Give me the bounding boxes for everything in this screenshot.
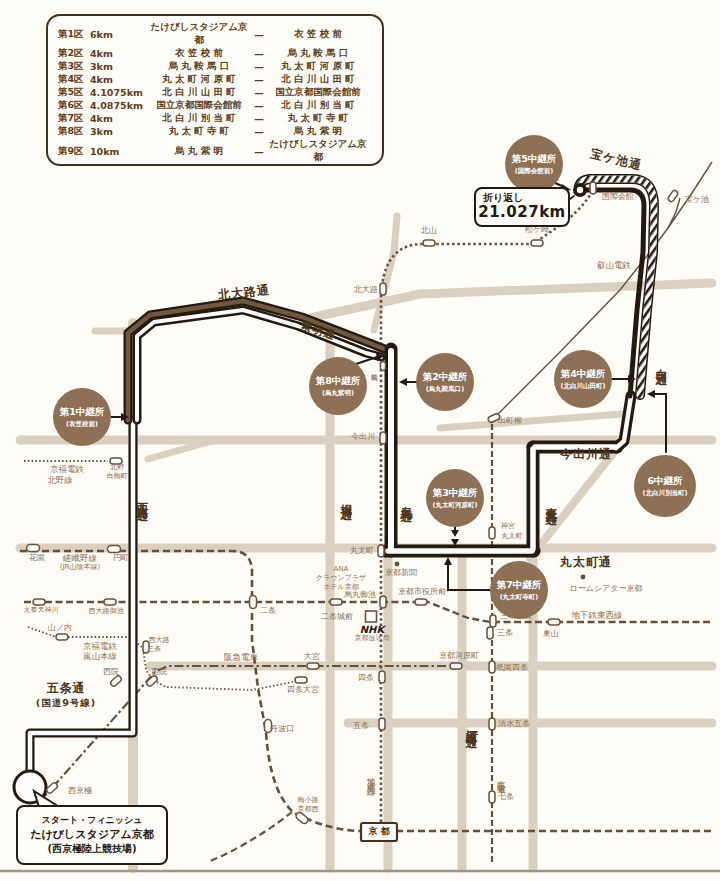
start-finish-label: スタート・フィニッシュ: [18, 814, 166, 827]
relay-8-name: 第8中継所: [316, 375, 361, 388]
relay-station-8-badge: 第8中継所 (烏丸紫明): [309, 357, 367, 415]
station-label-shichijo: 七条: [498, 793, 514, 802]
rohm-theatre-dot: [581, 575, 586, 580]
table-row: 第4区4km丸 太 町 河 原 町—北 白 川 山 田 町: [58, 73, 372, 86]
railway-label-keihan: 京阪電車: [496, 773, 505, 781]
leg-number: 第8区: [58, 125, 90, 138]
railway-label-karasuma-subway: 地下鉄烏丸線: [366, 771, 375, 783]
railway-label-keifuku-kitano-1: 京福電鉄: [50, 465, 84, 474]
leg-from: 北 白 川 山 田 町: [146, 86, 252, 99]
landmark-label-nhk: NHK: [360, 624, 385, 635]
table-row: 第8区3km丸 太 町 寺 町—烏 丸 紫 明: [58, 125, 372, 138]
dash: —: [252, 126, 266, 137]
railway-label-tozai-subway: 地下鉄東西線: [572, 611, 623, 620]
station-label-demachiyanagi: 出町柳: [498, 417, 522, 426]
leg-from: 衣 笠 校 前: [146, 47, 252, 60]
leg-number: 第2区: [58, 47, 90, 60]
station-label-marutamachi: 丸太町: [350, 547, 374, 556]
station-label-yamanouchi: 山ノ内: [48, 624, 72, 633]
relay-3-name: 第3中継所: [433, 487, 478, 500]
station-label-kyoto-kawaramachi: 京都河原町: [439, 652, 479, 661]
table-row: 第3区3km烏 丸 鞍 馬 口—丸 太 町 河 原 町: [58, 60, 372, 73]
station-label-nijojo-mae: 二条城前: [321, 613, 353, 622]
leg-number: 第9区: [58, 145, 90, 158]
station-label-jingu-marutamachi-1: 神宮: [501, 523, 515, 531]
station-label-sanjo: 三条: [497, 629, 513, 638]
station-label-saiin-west: 西院: [103, 668, 119, 677]
leg-to: 烏 丸 紫 明: [266, 125, 370, 138]
station-label-karasuma-oike: 烏丸御池: [344, 591, 376, 600]
relay-7-name: 第7中継所: [497, 579, 542, 592]
road-label-kawaramachi: 河原町通: [464, 720, 477, 728]
station-label-nishikyogoku: 西京極: [68, 787, 92, 796]
leg-from: 丸 太 町 寺 町: [146, 125, 252, 138]
turnaround-callout: 折り返し 21.027km: [474, 187, 570, 227]
leg-to: たけびしスタジアム京都: [266, 138, 370, 164]
start-finish-stadium: たけびしスタジアム京都: [18, 827, 166, 842]
relay-station-2-badge: 第2中継所 (烏丸鞍馬口): [416, 353, 474, 411]
relay-1-place: (衣笠校前): [66, 420, 98, 429]
legend-table: 第1区6kmたけびしスタジアム京都—衣 笠 校 前 第2区4km衣 笠 校 前—…: [46, 14, 384, 166]
dash: —: [252, 61, 266, 72]
relay-station-3-badge: 第3中継所 (丸太町河原町): [426, 469, 484, 527]
leg-to: 北 白 川 別 当 町: [266, 99, 370, 112]
dash: —: [252, 74, 266, 85]
leg-number: 第6区: [58, 99, 90, 112]
leg-distance: 4km: [90, 113, 146, 124]
railway-label-keifuku-kitano-2: 北野線: [47, 476, 73, 485]
nhk-building-icon: [366, 611, 377, 622]
dash: —: [252, 146, 266, 157]
landmark-symbols: [361, 562, 585, 841]
relay-7-place: (丸太町寺町): [500, 593, 538, 602]
dash: —: [252, 29, 266, 40]
station-label-shijo: 四条: [358, 674, 374, 683]
station-label-umekoji-2: 京都西: [298, 806, 319, 814]
leg-to: 烏 丸 鞍 馬 口: [266, 47, 370, 60]
leg-distance: 10km: [90, 146, 146, 157]
station-label-kitayama: 北山: [421, 227, 437, 236]
start-finish-venue: (西京極陸上競技場): [18, 842, 166, 856]
road-label-marutamachi: 丸太町通: [560, 556, 612, 569]
station-label-kokusaikaikan: 国際会館: [602, 193, 634, 202]
leg-distance: 6km: [90, 29, 146, 40]
station-label-enmachi: 円町: [113, 554, 129, 563]
road-label-imadegawa: 今出川通: [560, 448, 612, 461]
station-label-kitano-hakubaicho-2: 白梅町: [107, 473, 128, 481]
railway-label-randen-1: 京福電鉄: [83, 642, 117, 651]
station-label-shijo-omiya: 四条大宮: [287, 686, 319, 695]
ekiden-course-map: 第1区6kmたけびしスタジアム京都—衣 笠 校 前 第2区4km衣 笠 校 前—…: [0, 0, 720, 881]
table-row: 第2区4km衣 笠 校 前—烏 丸 鞍 馬 口: [58, 47, 372, 60]
dash: —: [252, 100, 266, 111]
station-label-kitaoji: 北大路: [354, 286, 378, 295]
kyoto-shimbun-dot: [395, 562, 400, 567]
railway-label-hankyu: 阪急電車: [224, 653, 258, 662]
relay-4-place: (北白川山田町): [561, 382, 606, 391]
relay-station-7-badge: 第7中継所 (丸太町寺町): [490, 561, 548, 619]
leg-distance: 3km: [90, 126, 146, 137]
leg-number: 第7区: [58, 112, 90, 125]
dash: —: [252, 87, 266, 98]
station-label-kitano-hakubaicho-1: 北野: [110, 464, 124, 472]
relay-station-5-badge: 第5中継所 (国際会館前): [505, 135, 563, 193]
hankyu-line: [22, 666, 446, 820]
station-label-jingu-marutamachi-2: 丸太町: [502, 533, 523, 541]
station-label-hanazono: 花園: [29, 554, 45, 563]
start-finish-callout: スタート・フィニッシュ たけびしスタジアム京都 (西京極陸上競技場): [16, 805, 168, 865]
station-label-tambaguchi: 丹波口: [270, 725, 294, 734]
table-row: 第6区4.0875km国立京都国際会館前—北 白 川 別 当 町: [58, 99, 372, 112]
station-label-saiin-east: 西院: [151, 668, 167, 677]
leg-distance: 3km: [90, 61, 146, 72]
relay-4-name: 第4中継所: [561, 368, 606, 381]
relay-8-place: (烏丸紫明): [322, 389, 354, 398]
relay-6-name: 6中継所: [647, 475, 682, 488]
road-label-gojo-sub: (国道9号線): [36, 698, 96, 708]
landmark-label-ana-2: クラウンプラザ: [316, 575, 366, 583]
jr-branch-line: [210, 812, 292, 861]
leg-number: 第5区: [58, 86, 90, 99]
railway-label-randen-2: 嵐山本線: [83, 652, 117, 661]
leg-from: 丸 太 町 河 原 町: [146, 73, 252, 86]
station-label-gojo: 五条: [353, 722, 369, 731]
relay-station-4-badge: 第4中継所 (北白川山田町): [554, 350, 612, 408]
leg-distance: 4km: [90, 74, 146, 85]
leg-to: 丸 太 町 寺 町: [266, 112, 370, 125]
leg-distance: 4.0875km: [90, 100, 146, 111]
railway-label-eizan: 叡山電鉄: [597, 261, 631, 270]
station-label-takaragaike: 宝ケ池: [685, 196, 709, 205]
leg-to: 国立京都国際会館前: [266, 86, 370, 99]
station-label-umekoji-1: 梅小路: [298, 797, 319, 805]
road-label-nishioji: 西大路通: [135, 493, 148, 501]
table-row: 第9区10km烏 丸 紫 明—たけびしスタジアム京都: [58, 138, 372, 164]
leg-number: 第1区: [58, 28, 90, 41]
leg-to: 丸 太 町 河 原 町: [266, 60, 370, 73]
leg-from: たけびしスタジアム京都: [146, 21, 252, 47]
road-label-horikawa: 堀川通: [339, 494, 352, 500]
leg-to: 北 白 川 山 田 町: [266, 73, 370, 86]
station-label-higashiyama: 東山: [543, 630, 559, 639]
station-label-nishioji-sanjo-2: 三条: [147, 646, 161, 654]
railway-label-sagano-2: (JR山陰本線): [60, 564, 100, 572]
relay-2-place: (烏丸鞍馬口): [426, 385, 464, 394]
relay-5-place: (国際会館前): [515, 167, 553, 176]
relay-2-name: 第2中継所: [423, 371, 468, 384]
station-label-omiya: 大宮: [304, 653, 320, 662]
station-label-gion-shijo: 祇園四条: [496, 664, 528, 673]
station-label-nijo: 二条: [260, 607, 276, 616]
dash: —: [252, 113, 266, 124]
table-row: 第5区4.1075km北 白 川 山 田 町—国立京都国際会館前: [58, 86, 372, 99]
leg-from: 烏 丸 鞍 馬 口: [146, 60, 252, 73]
table-row: 第1区6kmたけびしスタジアム京都—衣 笠 校 前: [58, 21, 372, 47]
station-label-kiyomizu-gojo: 清水五条: [498, 720, 530, 729]
leg-distance: 4.1075km: [90, 87, 146, 98]
landmark-label-ana-3: ホテル京都: [323, 584, 359, 592]
dash: —: [252, 48, 266, 59]
relay-station-1-badge: 第1中継所 (衣笠校前): [53, 388, 111, 446]
station-label-shiyakusho-mae: 京都市役所前: [398, 588, 446, 597]
leg-to: 衣 笠 校 前: [266, 28, 370, 41]
leg-distance: 4km: [90, 48, 146, 59]
landmark-label-rohm-theatre: ロームシアター京都: [570, 585, 643, 594]
leg-from: 北 白 川 別 当 町: [146, 112, 252, 125]
relay-3-place: (丸太町河原町): [433, 501, 478, 510]
landmark-label-nhk-kyoto: 京都放送局: [355, 635, 390, 643]
leg-from: 国立京都国際会館前: [146, 99, 252, 112]
road-label-karasuma: 烏丸通: [399, 496, 412, 502]
road-label-shirakawa: 白川通: [654, 359, 667, 365]
station-label-nishioji-oike: 西大路御池: [89, 608, 124, 616]
station-label-uzumasa-tenjingawa: 太秦天神川: [24, 607, 59, 615]
leg-from: 烏 丸 紫 明: [146, 145, 252, 158]
relay-station-6-badge: 6中継所 (北白川別当町): [634, 455, 696, 517]
road-label-higashioji: 東大路通: [544, 497, 557, 505]
relay-5-name: 第5中継所: [512, 153, 557, 166]
relay-1-name: 第1中継所: [60, 406, 105, 419]
leg-number: 第3区: [58, 60, 90, 73]
leg-number: 第4区: [58, 73, 90, 86]
landmark-label-ana-1: ANA: [334, 566, 349, 574]
road-label-gojo: 五条通: [47, 682, 86, 695]
turnaround-distance: 21.027km: [476, 205, 568, 220]
relay-6-place: (北白川別当町): [643, 489, 688, 498]
table-row: 第7区4km北 白 川 別 当 町—丸 太 町 寺 町: [58, 112, 372, 125]
station-label-kyoto: 京 都: [368, 827, 389, 837]
station-label-nishioji-sanjo-1: 西大路: [149, 637, 170, 645]
landmark-label-kyoto-shimbun: 京都新聞: [385, 569, 417, 578]
station-label-imadegawa: 今出川: [351, 433, 375, 442]
